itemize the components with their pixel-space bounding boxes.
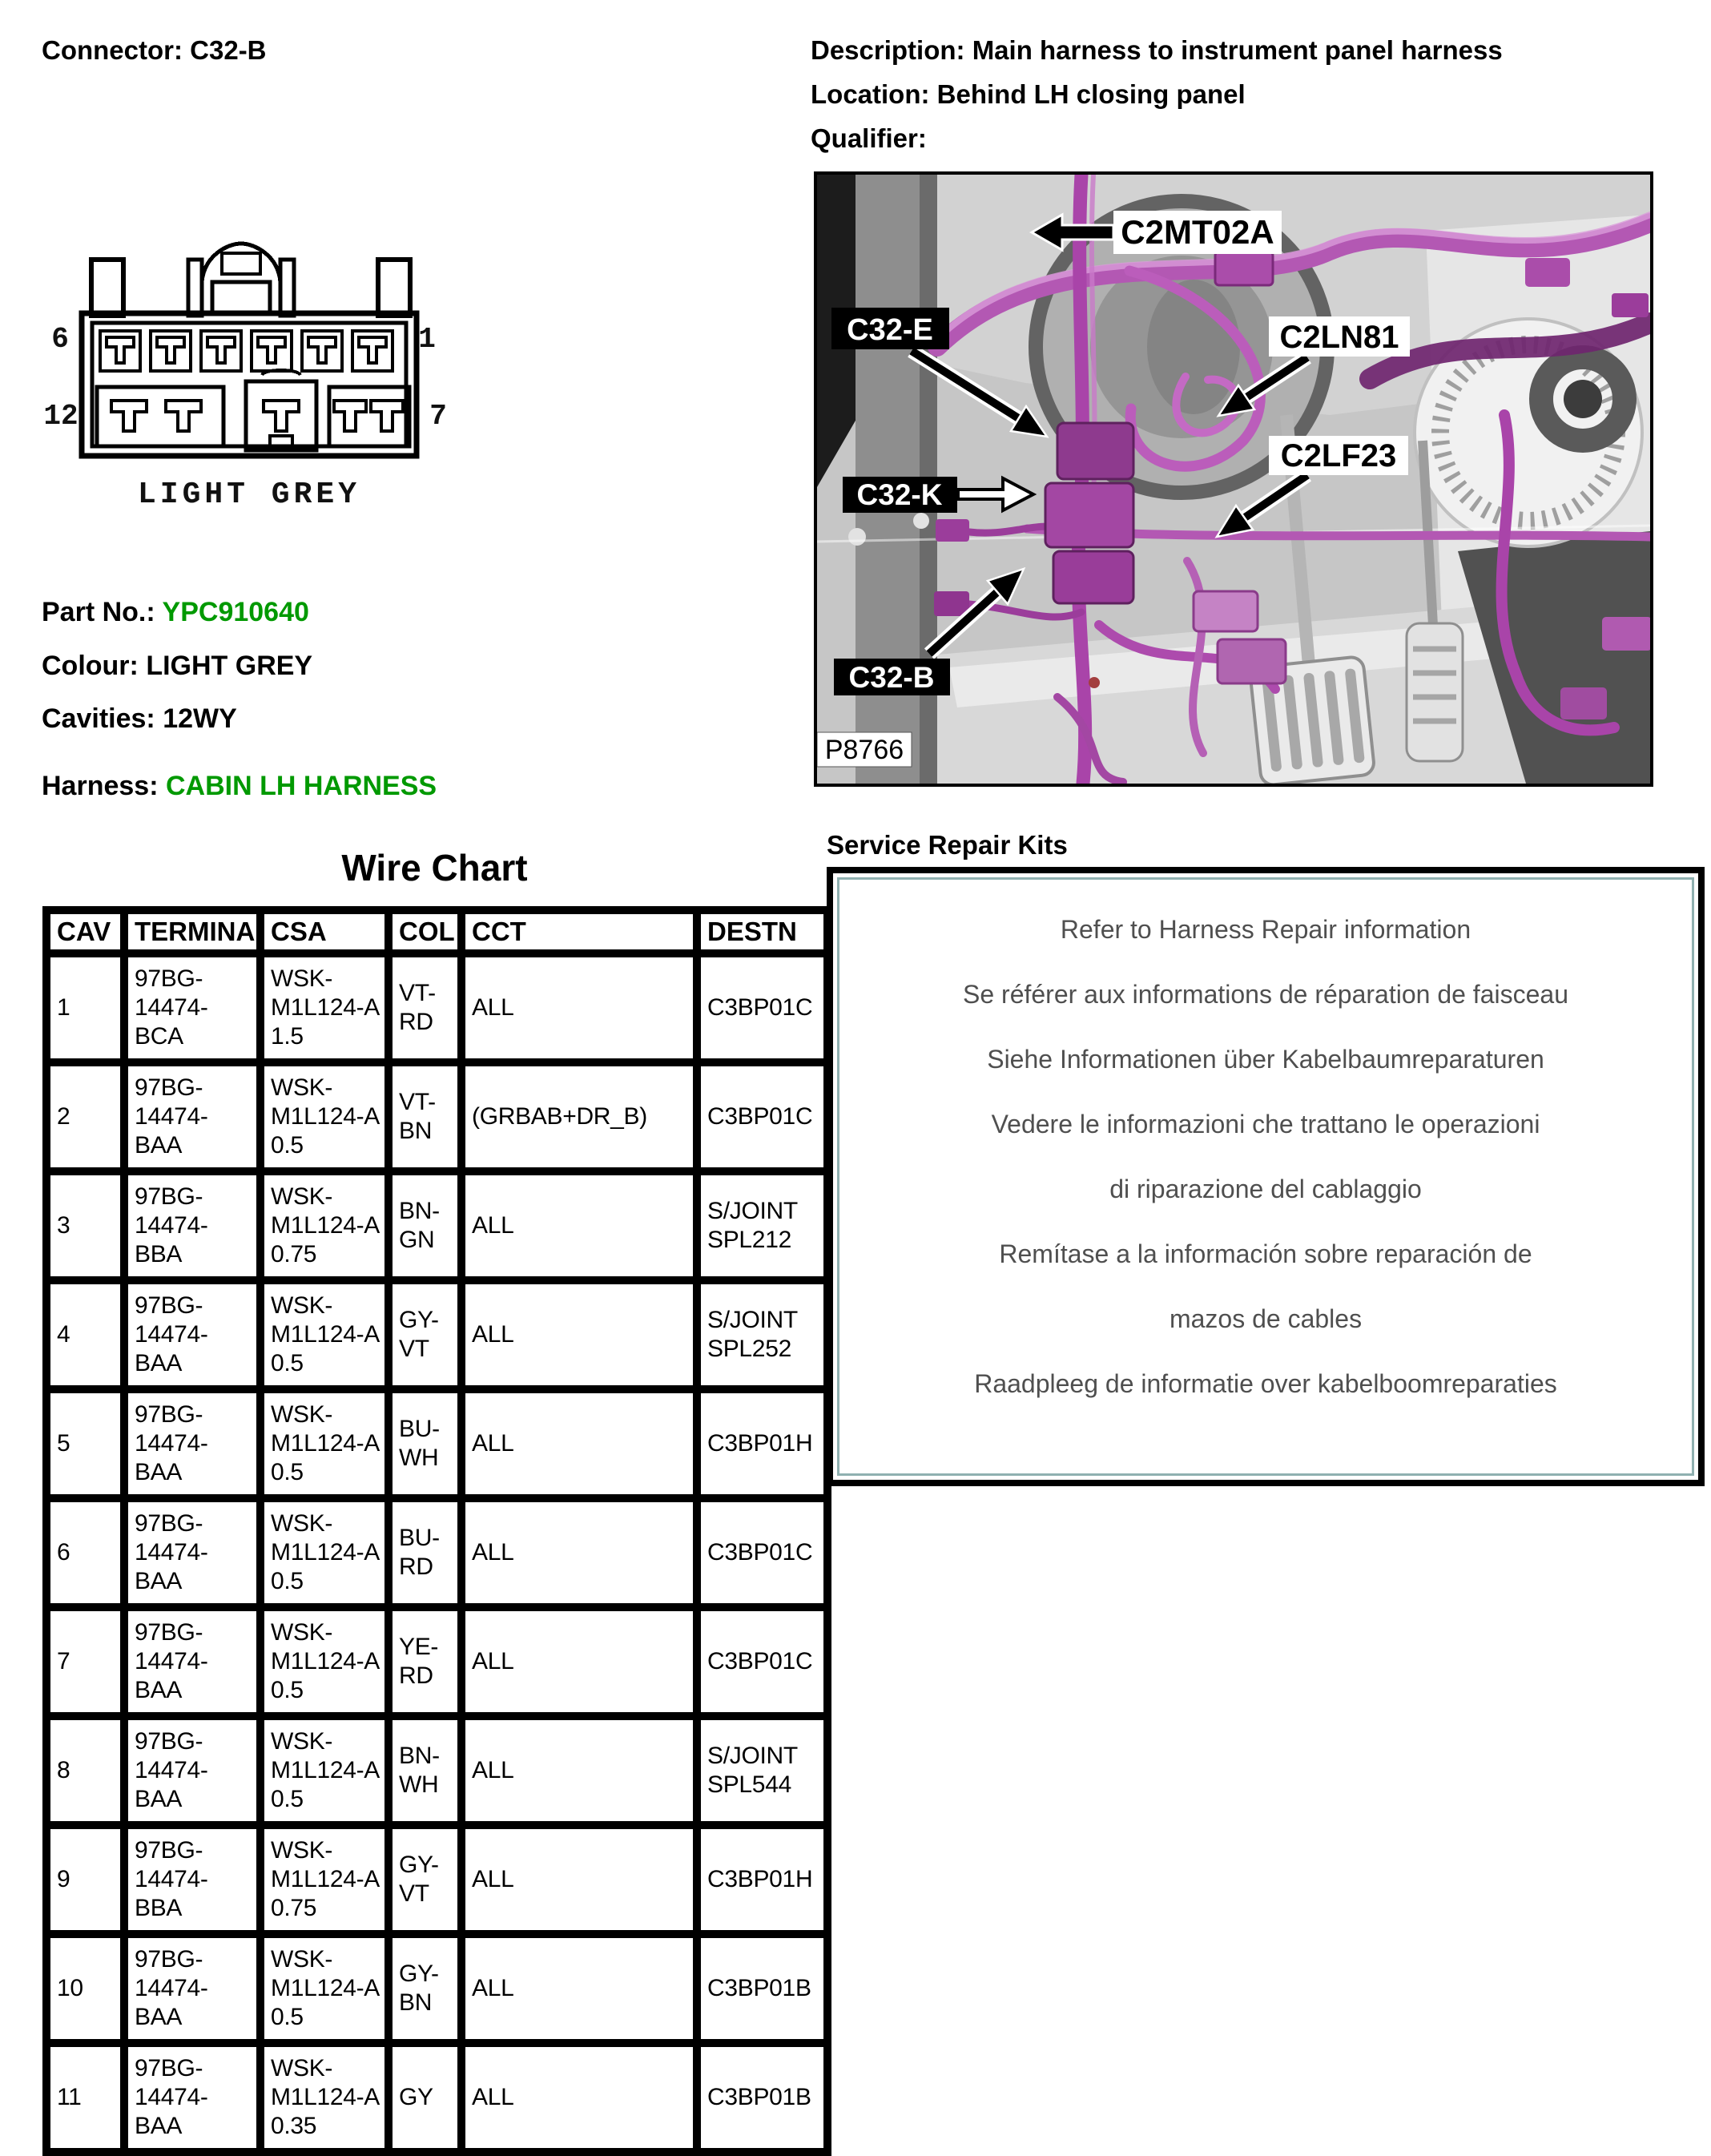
cell-cav: 8 [46, 1716, 124, 1825]
cell-destn: S/JOINT SPL252 [697, 1280, 827, 1389]
cell-csa: WSK-M1L124-A 0.5 [260, 1280, 388, 1389]
cell-terminal: 97BG-14474-BBA [124, 1171, 260, 1280]
cell-destn: S/JOINT SPL212 [697, 1171, 827, 1280]
cavities-label: Cavities: [42, 703, 155, 734]
table-row: 297BG-14474-BAAWSK-M1L124-A 0.5VT-BN(GRB… [46, 1062, 827, 1171]
service-kit-line: di riparazione del cablaggio [839, 1157, 1692, 1222]
cell-csa: WSK-M1L124-A 0.75 [260, 1171, 388, 1280]
cell-cct: ALL [461, 2043, 697, 2152]
cell-col: GY-VT [388, 1280, 461, 1389]
cell-cct: ALL [461, 1716, 697, 1825]
harness-label: Harness: [42, 771, 159, 801]
cell-col: YE-RD [388, 1607, 461, 1716]
cavities-line: Cavities: 12WY [42, 703, 237, 735]
service-kit-line: Refer to Harness Repair information [839, 897, 1692, 962]
cell-cct: (GRBAB+DR_B) [461, 1062, 697, 1171]
location-line: Location: Behind LH closing panel [811, 79, 1503, 123]
col-header-cct: CCT [461, 910, 697, 953]
cell-csa: WSK-M1L124-A 0.35 [260, 2043, 388, 2152]
part-no-line: Part No.: YPC910640 [42, 597, 309, 628]
col-header-col: COL [388, 910, 461, 953]
table-row: 897BG-14474-BAAWSK-M1L124-A 0.5BN-WHALLS… [46, 1716, 827, 1825]
wire-table-body: 197BG-14474-BCAWSK-M1L124-A 1.5VT-RDALLC… [46, 953, 827, 2152]
cell-destn: C3BP01B [697, 1934, 827, 2043]
cell-csa: WSK-M1L124-A 0.5 [260, 1062, 388, 1171]
col-header-destn: DESTN [697, 910, 827, 953]
cell-cav: 11 [46, 2043, 124, 2152]
pinout-drawing: 6 1 12 7 LIGHT GREY [44, 240, 453, 513]
table-row: 397BG-14474-BBAWSK-M1L124-A 0.75BN-GNALL… [46, 1171, 827, 1280]
location-photo: C2MT02A C32-E C2LN81 C2LF23 C32-K C32-B … [814, 171, 1653, 787]
connector-pinout-diagram: 6 1 12 7 LIGHT GREY [44, 240, 453, 513]
pin-number-bottom-left: 12 [44, 400, 79, 433]
cell-terminal: 97BG-14474-BAA [124, 1062, 260, 1171]
cell-csa: WSK-M1L124-A 0.5 [260, 1934, 388, 2043]
wiring-document-page: { "header": { "connector": "Connector: C… [0, 0, 1711, 2134]
part-no-value: YPC910640 [163, 597, 309, 627]
cell-csa: WSK-M1L124-A 0.5 [260, 1607, 388, 1716]
pin-number-bottom-right: 7 [429, 400, 447, 433]
cell-terminal: 97BG-14474-BBA [124, 1825, 260, 1934]
pin-number-top-left: 6 [51, 323, 69, 356]
table-row: 497BG-14474-BAAWSK-M1L124-A 0.5GY-VTALLS… [46, 1280, 827, 1389]
pin-number-top-right: 1 [418, 323, 436, 356]
service-kits-box: Refer to Harness Repair informationSe ré… [827, 867, 1705, 1486]
cell-cct: ALL [461, 1389, 697, 1498]
service-kit-line: Raadpleeg de informatie over kabelboomre… [839, 1352, 1692, 1417]
colour-label: Colour: [42, 651, 139, 681]
service-kit-line: mazos de cables [839, 1287, 1692, 1352]
service-kits-lines: Refer to Harness Repair informationSe ré… [837, 877, 1694, 1476]
service-kit-line: Siehe Informationen über Kabelbaumrepara… [839, 1027, 1692, 1092]
cell-cct: ALL [461, 1934, 697, 2043]
cell-terminal: 97BG-14474-BAA [124, 1607, 260, 1716]
cell-cct: ALL [461, 1171, 697, 1280]
cell-cav: 3 [46, 1171, 124, 1280]
cell-cav: 6 [46, 1498, 124, 1607]
cell-terminal: 97BG-14474-BCA [124, 953, 260, 1062]
cell-col: BN-WH [388, 1716, 461, 1825]
cell-col: GY [388, 2043, 461, 2152]
cell-col: BU-WH [388, 1389, 461, 1498]
header-info-block: Description: Main harness to instrument … [811, 35, 1503, 167]
wire-table-header-row: CAV TERMINAL CSA COL CCT DESTN [46, 910, 827, 953]
cell-cct: ALL [461, 1825, 697, 1934]
wire-chart-table: CAV TERMINAL CSA COL CCT DESTN 197BG-144… [42, 906, 831, 2156]
table-row: 997BG-14474-BBAWSK-M1L124-A 0.75GY-VTALL… [46, 1825, 827, 1934]
harness-line: Harness: CABIN LH HARNESS [42, 771, 437, 802]
figure-id-label: P8766 [825, 735, 904, 765]
col-header-cav: CAV [46, 910, 124, 953]
cell-terminal: 97BG-14474-BAA [124, 1280, 260, 1389]
col-header-csa: CSA [260, 910, 388, 953]
table-row: 597BG-14474-BAAWSK-M1L124-A 0.5BU-WHALLC… [46, 1389, 827, 1498]
table-row: 1097BG-14474-BAAWSK-M1L124-A 0.5GY-BNALL… [46, 1934, 827, 2043]
cell-cav: 2 [46, 1062, 124, 1171]
cell-col: BU-RD [388, 1498, 461, 1607]
harness-value: CABIN LH HARNESS [166, 771, 437, 801]
cell-cav: 1 [46, 953, 124, 1062]
cell-csa: WSK-M1L124-A 0.5 [260, 1389, 388, 1498]
cell-destn: C3BP01C [697, 1607, 827, 1716]
table-row: 697BG-14474-BAAWSK-M1L124-A 0.5BU-RDALLC… [46, 1498, 827, 1607]
callout-c2lf23: C2LF23 [1281, 438, 1397, 474]
cell-col: VT-RD [388, 953, 461, 1062]
service-kit-line: Se référer aux informations de réparatio… [839, 962, 1692, 1027]
colour-line: Colour: LIGHT GREY [42, 651, 312, 682]
cell-cav: 7 [46, 1607, 124, 1716]
cell-destn: C3BP01C [697, 1062, 827, 1171]
cell-col: GY-VT [388, 1825, 461, 1934]
wire-chart-title: Wire Chart [44, 846, 825, 889]
service-kit-line: Vedere le informazioni che trattano le o… [839, 1092, 1692, 1157]
colour-value: LIGHT GREY [146, 651, 312, 681]
cell-col: VT-BN [388, 1062, 461, 1171]
cell-cct: ALL [461, 1280, 697, 1389]
callout-c2ln81: C2LN81 [1280, 320, 1399, 355]
connector-colour-label: LIGHT GREY [138, 478, 360, 512]
cell-csa: WSK-M1L124-A 0.5 [260, 1498, 388, 1607]
cell-cct: ALL [461, 1607, 697, 1716]
cell-destn: C3BP01C [697, 1498, 827, 1607]
col-header-terminal: TERMINAL [124, 910, 260, 953]
callout-c32-e: C32-E [847, 313, 933, 347]
cell-cav: 9 [46, 1825, 124, 1934]
callout-c32-b: C32-B [849, 661, 935, 694]
cell-destn: C3BP01B [697, 2043, 827, 2152]
cell-cct: ALL [461, 953, 697, 1062]
table-row: 197BG-14474-BCAWSK-M1L124-A 1.5VT-RDALLC… [46, 953, 827, 1062]
cell-cav: 5 [46, 1389, 124, 1498]
location-photo-illustration: C2MT02A C32-E C2LN81 C2LF23 C32-K C32-B … [817, 175, 1650, 784]
cell-col: BN-GN [388, 1171, 461, 1280]
cell-csa: WSK-M1L124-A 0.75 [260, 1825, 388, 1934]
cell-destn: C3BP01H [697, 1389, 827, 1498]
cell-cav: 4 [46, 1280, 124, 1389]
qualifier-line: Qualifier: [811, 123, 1503, 167]
cell-cct: ALL [461, 1498, 697, 1607]
service-kits-title: Service Repair Kits [827, 830, 1068, 860]
cell-terminal: 97BG-14474-BAA [124, 1389, 260, 1498]
callout-c32-k: C32-K [857, 478, 943, 511]
cell-terminal: 97BG-14474-BAA [124, 1498, 260, 1607]
cavities-value: 12WY [163, 703, 237, 734]
cell-terminal: 97BG-14474-BAA [124, 1934, 260, 2043]
callout-c2mt02a: C2MT02A [1121, 213, 1274, 251]
cell-csa: WSK-M1L124-A 1.5 [260, 953, 388, 1062]
cell-destn: C3BP01C [697, 953, 827, 1062]
cell-col: GY-BN [388, 1934, 461, 2043]
description-line: Description: Main harness to instrument … [811, 35, 1503, 79]
cell-destn: S/JOINT SPL544 [697, 1716, 827, 1825]
cell-destn: C3BP01H [697, 1825, 827, 1934]
part-no-label: Part No.: [42, 597, 155, 627]
connector-title: Connector: C32-B [42, 35, 267, 66]
service-kit-line: Remítase a la información sobre reparaci… [839, 1222, 1692, 1287]
accelerator-pedal [1407, 623, 1463, 761]
cell-cav: 10 [46, 1934, 124, 2043]
table-row: 797BG-14474-BAAWSK-M1L124-A 0.5YE-RDALLC… [46, 1607, 827, 1716]
cell-terminal: 97BG-14474-BAA [124, 2043, 260, 2152]
cell-csa: WSK-M1L124-A 0.5 [260, 1716, 388, 1825]
table-row: 1197BG-14474-BAAWSK-M1L124-A 0.35GYALLC3… [46, 2043, 827, 2152]
cell-terminal: 97BG-14474-BAA [124, 1716, 260, 1825]
